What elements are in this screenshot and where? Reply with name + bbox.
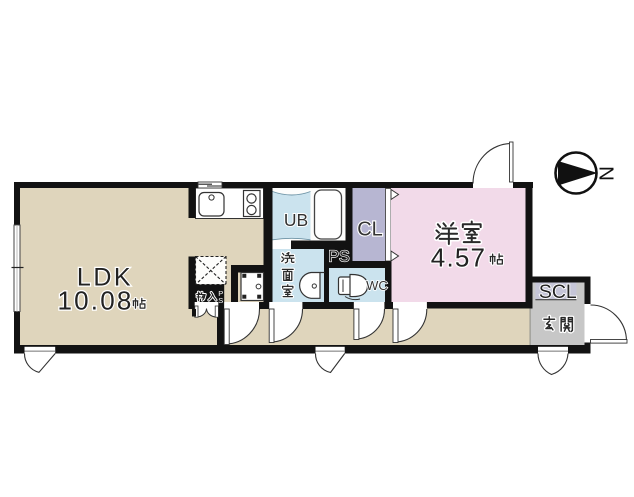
svg-text:PS: PS [328, 249, 349, 266]
svg-text:N: N [595, 166, 618, 181]
svg-text:10.08: 10.08 [57, 286, 133, 316]
svg-text:WC: WC [366, 278, 388, 293]
svg-text:CL: CL [357, 219, 383, 241]
svg-text:SCL: SCL [539, 281, 577, 303]
svg-text:4.57: 4.57 [431, 243, 486, 273]
svg-text:S: S [218, 296, 223, 305]
svg-text:UB: UB [284, 210, 308, 230]
